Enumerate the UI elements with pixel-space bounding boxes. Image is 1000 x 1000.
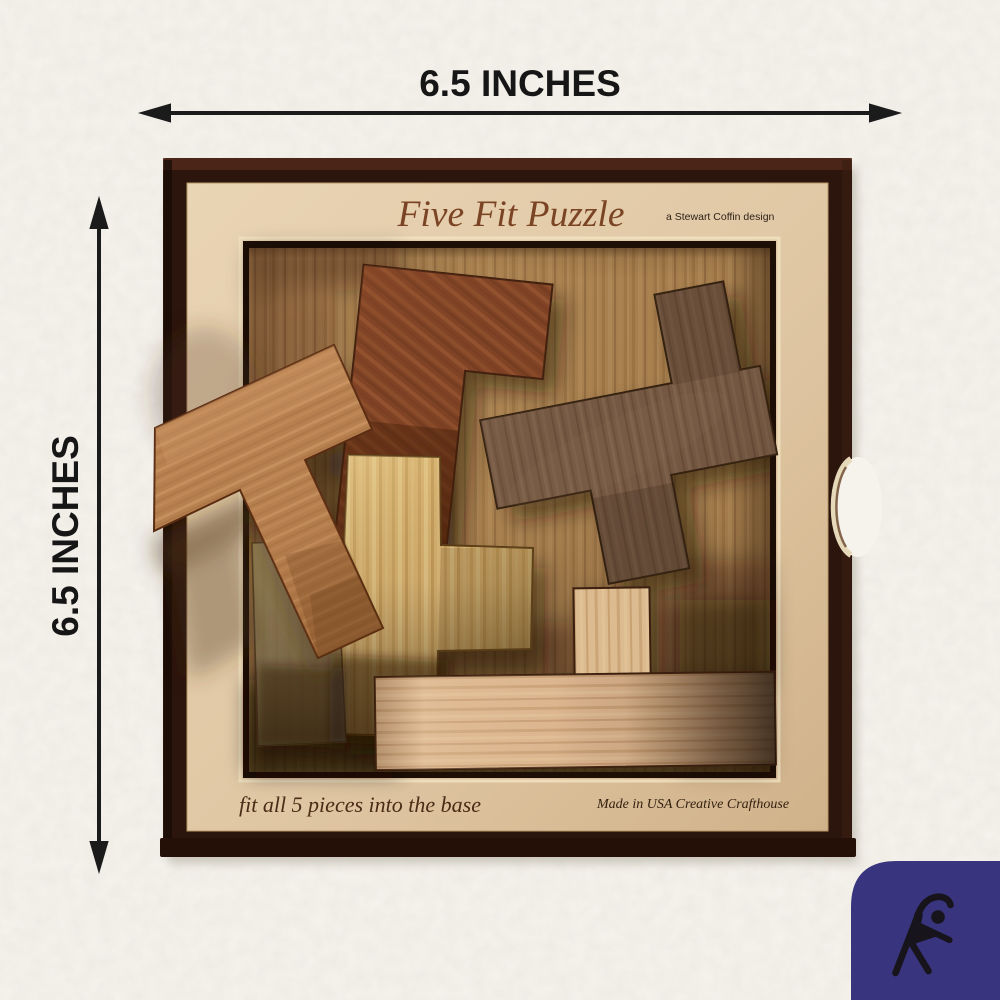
svg-text:6.5 INCHES: 6.5 INCHES — [45, 435, 86, 637]
svg-text:a Stewart Coffin design: a Stewart Coffin design — [666, 211, 775, 223]
svg-text:6.5 INCHES: 6.5 INCHES — [419, 63, 621, 104]
svg-text:fit all 5 pieces into the base: fit all 5 pieces into the base — [239, 792, 481, 817]
svg-text:Five Fit Puzzle: Five Fit Puzzle — [396, 194, 624, 235]
svg-text:Made in USA Creative Crafthous: Made in USA Creative Crafthouse — [596, 797, 789, 812]
